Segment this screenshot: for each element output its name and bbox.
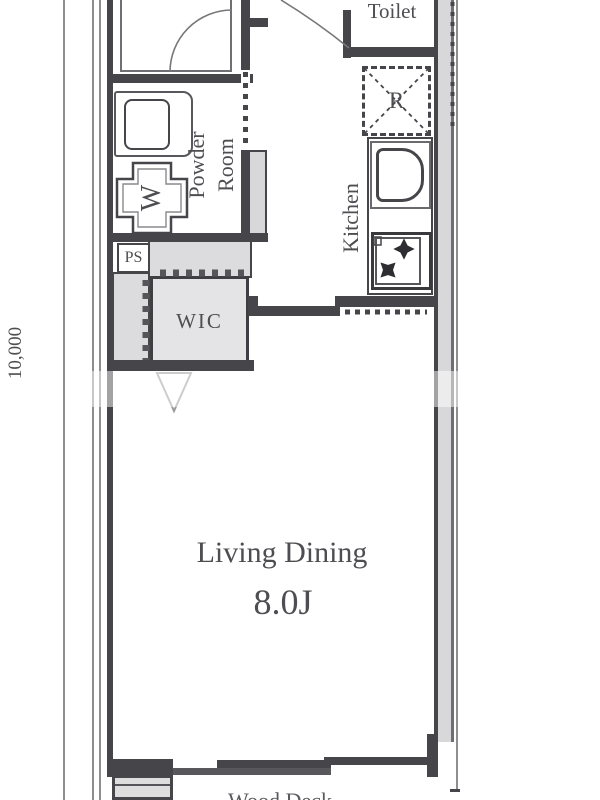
living-dining-size-label: 8.0J — [133, 580, 433, 624]
floor-plan: 10,000 Toilet Powder Room Kitchen PS WIC… — [0, 0, 600, 800]
powder-room-label: Powder Room — [182, 95, 242, 235]
ps-label: PS — [117, 243, 150, 273]
living-dining-label: Living Dining — [132, 534, 432, 572]
powder-room-line1: Powder — [182, 95, 211, 235]
toilet-door-arc — [281, 0, 349, 48]
wic-text: WIC — [176, 309, 223, 334]
kitchen-text: Kitchen — [338, 183, 364, 253]
wic-label: WIC — [150, 276, 249, 367]
refrigerator-label: R — [362, 66, 431, 136]
powder-room-line2: Room — [211, 95, 240, 235]
stove-control-icon — [374, 237, 381, 245]
dimension-label: 10,000 — [6, 295, 26, 411]
refrigerator-text: R — [389, 88, 404, 114]
ps-text: PS — [125, 249, 143, 267]
living-dining-size-text: 8.0J — [253, 581, 312, 623]
balcony-label-clipped: Wood Deck — [180, 788, 380, 800]
watermark-band — [88, 371, 460, 407]
toilet-label: Toilet — [342, 0, 442, 24]
living-dining-text: Living Dining — [197, 536, 368, 570]
dimension-text: 10,000 — [5, 327, 27, 379]
washing-machine-label: W — [132, 178, 172, 218]
balcony-text: Wood Deck — [228, 788, 332, 800]
toilet-text: Toilet — [368, 0, 417, 24]
stove-burner-icon-2 — [375, 257, 400, 282]
kitchen-label: Kitchen — [337, 163, 365, 273]
stove-burner-icon-1 — [395, 240, 413, 258]
bath-door-arc — [170, 10, 232, 72]
washing-machine-text: W — [136, 185, 168, 211]
